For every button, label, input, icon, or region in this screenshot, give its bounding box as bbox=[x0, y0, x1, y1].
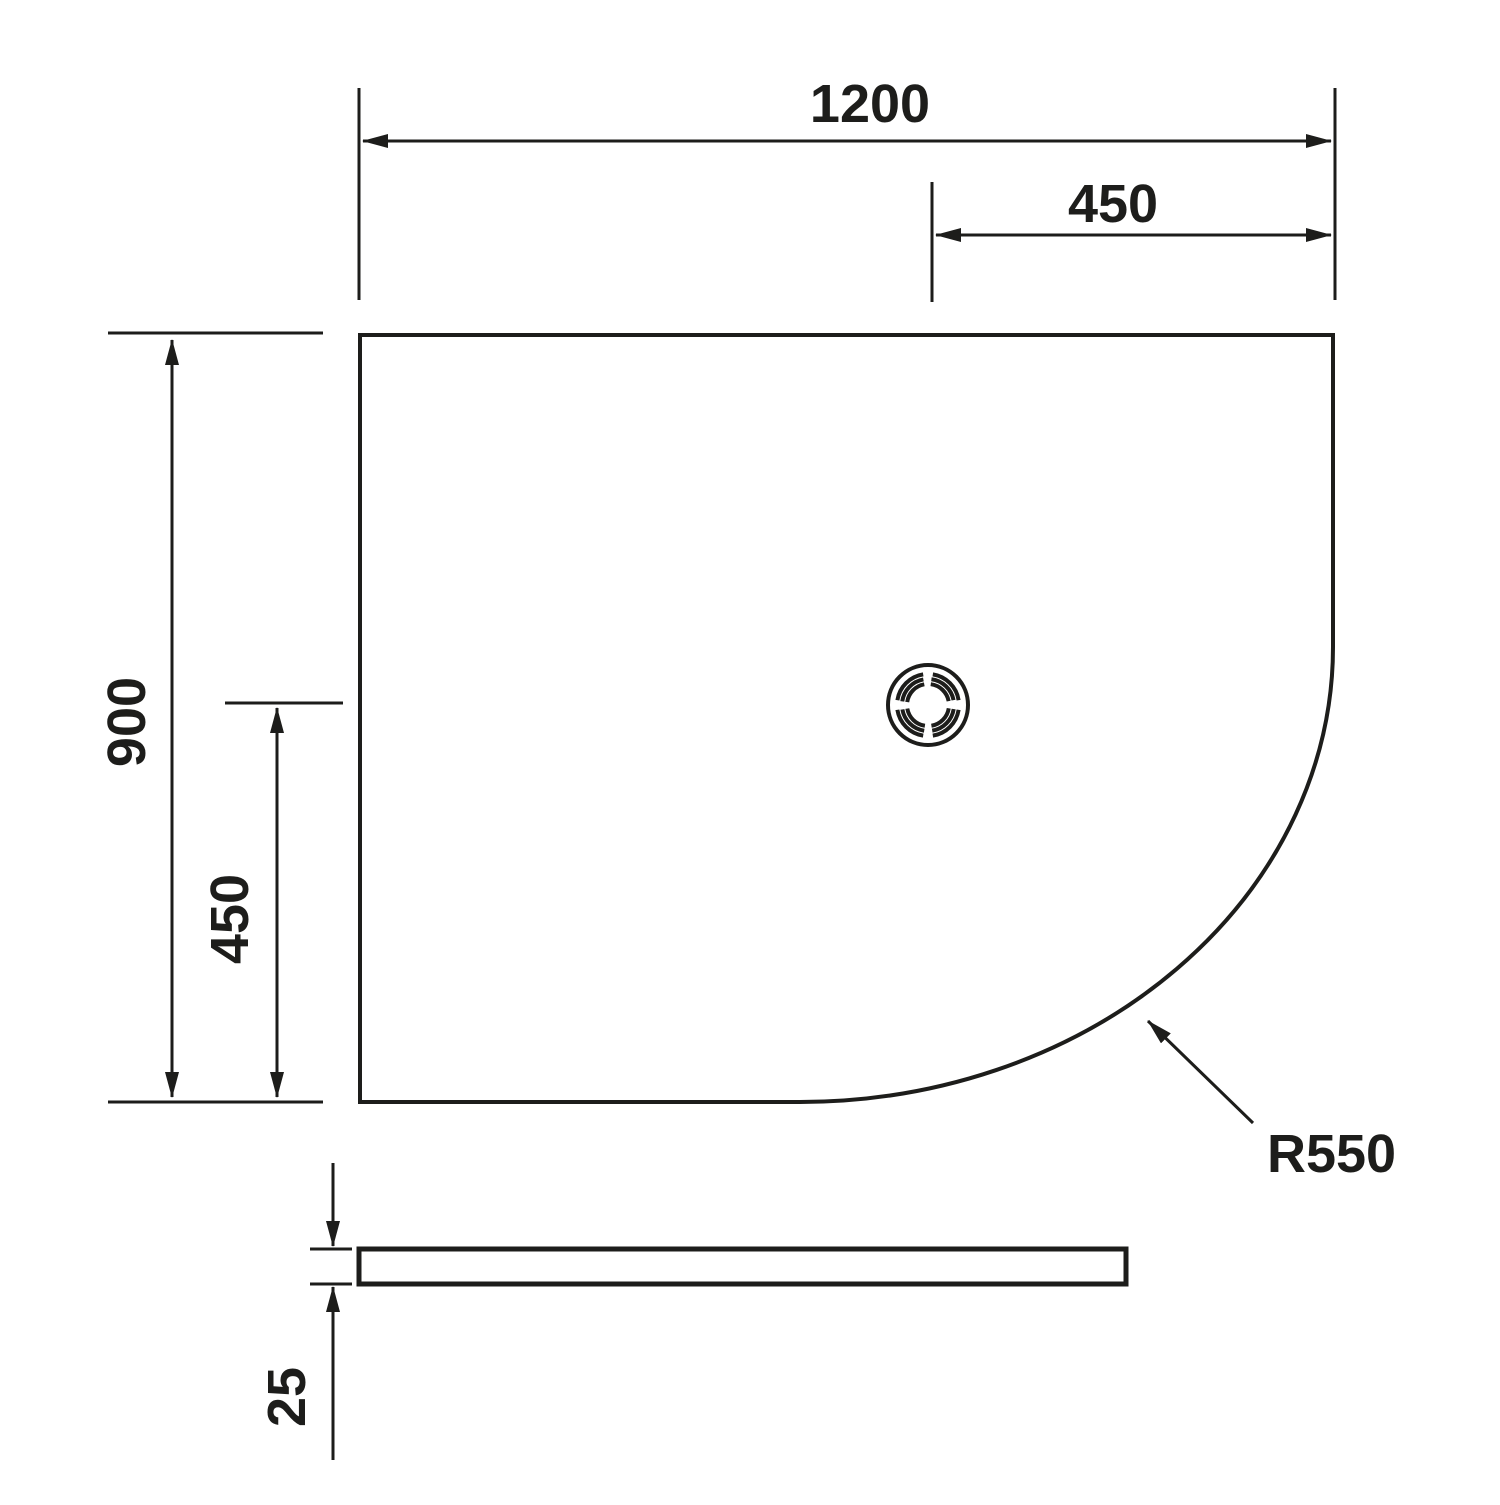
drain-groove-outer bbox=[897, 674, 959, 736]
top-view-outline bbox=[360, 335, 1333, 1102]
side-view-profile bbox=[359, 1249, 1126, 1284]
radius-leader-arrow bbox=[1148, 1021, 1253, 1123]
dim-label-width-offset: 450 bbox=[1068, 174, 1158, 234]
shower-tray-dimension-drawing: 1200 450 900 450 R550 25 bbox=[0, 0, 1500, 1500]
dim-label-width: 1200 bbox=[810, 74, 930, 134]
technical-drawing-canvas: 1200 450 900 450 R550 25 bbox=[0, 0, 1500, 1500]
dim-label-thickness: 25 bbox=[257, 1367, 317, 1427]
dim-label-height: 900 bbox=[97, 677, 157, 767]
drain-groove-inner bbox=[907, 684, 949, 726]
drain-outer-ring bbox=[888, 665, 968, 745]
drain-icon bbox=[888, 665, 968, 745]
dim-label-height-offset: 450 bbox=[200, 874, 260, 964]
drain-groove-middle bbox=[902, 679, 954, 731]
dim-label-radius: R550 bbox=[1267, 1124, 1396, 1184]
